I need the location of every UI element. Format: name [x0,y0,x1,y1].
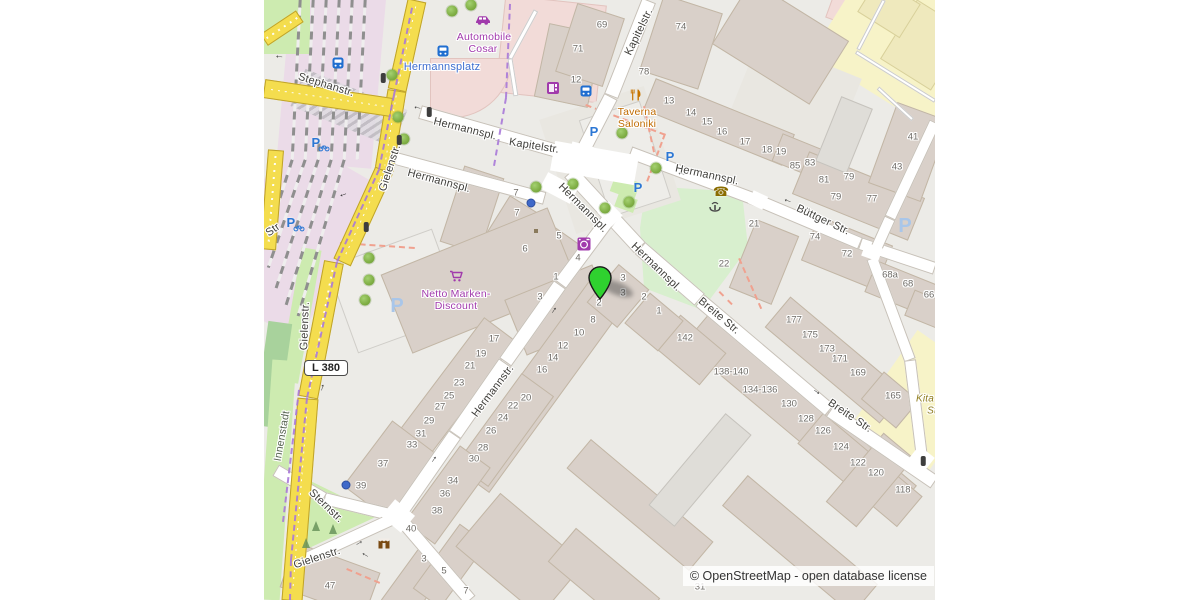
car-icon [475,14,491,30]
housenumber-label: 20 [521,393,532,404]
poi-label: Cosar [468,43,497,55]
housenumber-label: 21 [465,361,476,372]
housenumber-label: 1 [656,306,661,317]
housenumber-label: 16 [717,127,728,138]
tree-icon [651,163,662,174]
route-badge: L 380 [304,360,348,376]
housenumber-label: 40 [406,524,417,535]
housenumber-label: 25 [444,391,455,402]
housenumber-label: 72 [842,249,853,260]
housenumber-label: 33 [407,440,418,451]
conifer-icon [312,521,320,531]
housenumber-label: 19 [776,147,787,158]
housenumber-label: 142 [677,333,693,344]
housenumber-label: 19 [476,349,487,360]
housenumber-label: 4 [575,253,580,264]
housenumber-label: 2 [641,292,646,303]
arrow-icon: → [356,548,373,567]
housenumber-label: 3 [421,554,426,565]
arrow-icon: → [273,51,284,68]
housenumber-label: 134-136 [743,385,778,396]
housenumber-label: 16 [537,365,548,376]
poi-label: Taverna [618,106,657,118]
location-marker[interactable] [588,266,612,300]
housenumber-label: 12 [571,75,582,86]
poi-label: Automobile [457,31,512,43]
housenumber-label: 30 [469,454,480,465]
housenumber-label: 77 [867,194,878,205]
housenumber-label: 3 [620,273,625,284]
phone-icon: ☎ [713,184,729,200]
housenumber-label: 24 [498,413,509,424]
housenumber-label: 169 [850,368,866,379]
dot-icon [527,199,536,208]
attribution[interactable]: © OpenStreetMap - open database license [683,566,934,586]
housenumber-label: 12 [558,341,569,352]
housenumber-label: 37 [378,459,389,470]
tree-icon [360,295,371,306]
marker-pin-icon [588,266,612,300]
housenumber-label: 13 [664,96,675,107]
housenumber-label: 79 [844,172,855,183]
housenumber-label: 29 [424,416,435,427]
tl-icon [397,135,402,145]
tree-icon [447,6,458,17]
housenumber-label: 71 [573,44,584,55]
bus-icon [332,57,344,73]
housenumber-label: 23 [454,378,465,389]
housenumber-label: 68 [903,279,914,290]
tree-icon [364,275,375,286]
housenumber-label: 27 [435,402,446,413]
housenumber-label: 122 [850,458,866,469]
tree-icon [600,203,611,214]
housenumber-label: 130 [781,399,797,410]
building [548,528,661,600]
tl-icon [381,73,386,83]
housenumber-label: 5 [556,231,561,242]
housenumber-label: 10 [574,328,585,339]
housenumber-label: 47 [325,581,336,592]
tree-icon [364,253,375,264]
housenumber-label: 171 [832,354,848,365]
housenumber-label: 118 [895,485,910,496]
housenumber-label: 5 [441,566,446,577]
tree-icon [466,0,477,11]
poi-label: Hermannsplatz [404,61,481,73]
tree-icon [624,197,635,208]
cart-icon [449,270,463,287]
vending-icon [547,82,560,99]
housenumber-label: 69 [597,20,608,31]
poi-label: Discount [435,300,477,312]
housenumber-label: 31 [416,429,427,440]
dot-icon [342,481,351,490]
housenumber-label: 175 [802,330,818,341]
housenumber-label: 17 [489,334,500,345]
housenumber-label: 1 [553,272,558,283]
housenumber-label: 7 [513,188,518,199]
housenumber-label: 128 [798,414,814,425]
poi-label: Kita [916,394,934,405]
street-label: Gielenstr. [298,302,312,351]
housenumber-label: 85 [790,161,801,172]
restaurant-icon [630,89,642,106]
housenumber-label: 126 [815,426,831,437]
housenumber-label: 22 [508,401,519,412]
footpath [719,291,733,305]
housenumber-label: 68a [882,270,898,281]
housenumber-label: 74 [810,232,821,243]
housenumber-label: 6 [522,244,527,255]
housenumber-label: 21 [749,219,760,230]
housenumber-label: 14 [548,353,559,364]
housenumber-label: 18 [762,145,773,156]
housenumber-label: 177 [786,315,802,326]
housenumber-label: 36 [440,489,451,500]
housenumber-label: 81 [819,175,830,186]
housenumber-label: 43 [892,162,903,173]
housenumber-label: 28 [478,443,489,454]
housenumber-label: 165 [885,391,901,402]
conifer-icon [302,538,310,548]
p-icon: P [634,180,643,196]
housenumber-label: 78 [639,67,650,78]
bus-icon [580,85,592,101]
tl-icon [921,456,926,466]
tree-icon [387,70,398,81]
housenumber-label: 120 [868,468,884,479]
housenumber-label: 14 [686,108,697,119]
housenumber-label: 3 [537,292,542,303]
housenumber-label: 22 [719,259,730,270]
map-canvas[interactable]: ☎PPPPPPPP→→→→→→→→→→→Stephanstr.Gielenstr… [264,0,935,600]
housenumber-label: 124 [833,442,849,453]
pbig-icon: P [390,296,403,316]
housenumber-label: 8 [590,315,595,326]
housenumber-label: 138-140 [714,367,749,378]
ent-icon [534,229,538,233]
tree-icon [531,182,542,193]
tl-icon [427,107,432,117]
housenumber-label: 41 [908,132,919,143]
poi-label: Netto Marken- [421,288,490,300]
bus-icon [437,45,449,61]
housenumber-label: 34 [448,476,459,487]
housenumber-label: 39 [356,481,367,492]
tl-icon [364,222,369,232]
housenumber-label: 26 [486,426,497,437]
screenshot-root: ☎PPPPPPPP→→→→→→→→→→→Stephanstr.Gielenstr… [0,0,1200,600]
housenumber-label: 7 [514,208,519,219]
poi-label: St [927,406,935,417]
housenumber-label: 74 [676,22,687,33]
tree-icon [393,112,404,123]
housenumber-label: 7 [463,586,468,597]
housenumber-label: 79 [831,192,842,203]
housenumber-label: 38 [432,506,443,517]
kiosk-icon [378,537,390,553]
pbig-icon: P [898,216,911,236]
housenumber-label: 66 [924,290,935,301]
housenumber-label: 17 [740,137,751,148]
housenumber-label: 83 [805,158,816,169]
conifer-icon [329,524,337,534]
p-icon: P [666,149,675,165]
housenumber-label: 15 [702,117,713,128]
poi-label: Saloniki [618,118,656,130]
